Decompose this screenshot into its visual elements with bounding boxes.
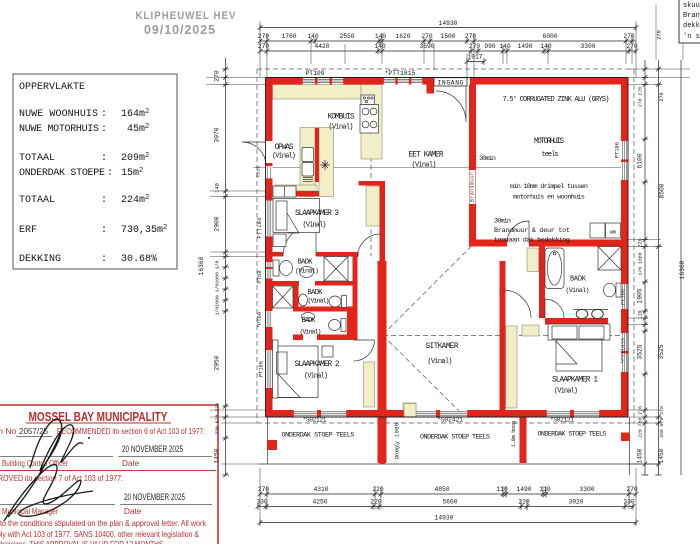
svg-text:2900: 2900 bbox=[214, 216, 221, 231]
svg-text:20 NOVEMBER 2025: 20 NOVEMBER 2025 bbox=[124, 492, 185, 502]
svg-text:(Vinal): (Vinal) bbox=[295, 268, 319, 275]
svg-text:PT186: PT186 bbox=[620, 289, 626, 305]
svg-text:wm: wm bbox=[610, 230, 616, 236]
svg-text::: : bbox=[101, 153, 107, 164]
svg-text:8500: 8500 bbox=[659, 183, 666, 198]
svg-text:*PT09: *PT09 bbox=[257, 312, 263, 328]
svg-text:6000: 6000 bbox=[542, 33, 557, 40]
svg-text:Bran: Bran bbox=[683, 12, 700, 20]
svg-text:3525: 3525 bbox=[637, 344, 644, 359]
svg-text:30.68%: 30.68% bbox=[121, 254, 157, 265]
svg-text:Subject to the conditions stip: Subject to the conditions stipulated on … bbox=[0, 519, 207, 528]
svg-text:14930: 14930 bbox=[439, 20, 458, 27]
svg-text::: : bbox=[101, 195, 107, 206]
svg-text:ERF: ERF bbox=[19, 225, 37, 236]
svg-text:*S02421: *S02421 bbox=[437, 417, 463, 424]
svg-text:1/01000 1/01000 1/0: 1/01000 1/01000 1/0 bbox=[215, 261, 221, 316]
svg-text:Brandmuur: Brandmuur bbox=[470, 172, 476, 202]
svg-text:Brandmuur & deur tot: Brandmuur & deur tot bbox=[494, 227, 570, 235]
svg-text:(Vinal): (Vinal) bbox=[308, 298, 330, 305]
svg-text:1.8m hoog: 1.8m hoog bbox=[511, 421, 517, 447]
svg-text::: : bbox=[101, 109, 107, 120]
svg-text:220: 220 bbox=[372, 486, 384, 493]
svg-text:KOMBUIS: KOMBUIS bbox=[328, 114, 355, 122]
svg-text::: : bbox=[107, 168, 113, 179]
svg-text:1490: 1490 bbox=[516, 486, 531, 493]
svg-text:330: 330 bbox=[256, 499, 268, 506]
svg-text:INGANG: INGANG bbox=[438, 79, 464, 86]
svg-text:1450: 1450 bbox=[658, 448, 665, 463]
svg-text:6100: 6100 bbox=[637, 153, 644, 168]
svg-text:3590: 3590 bbox=[419, 43, 434, 50]
svg-text:3920: 3920 bbox=[568, 499, 583, 506]
svg-text:Date: Date bbox=[124, 507, 142, 516]
svg-text:Droogly: Droogly bbox=[395, 440, 401, 459]
svg-text:APPROVED ito section 7 of Act: APPROVED ito section 7 of Act 103 of 197… bbox=[0, 474, 123, 483]
svg-text:OPWAS: OPWAS bbox=[275, 144, 294, 152]
svg-text:3970: 3970 bbox=[214, 127, 221, 142]
svg-text:1017: 1017 bbox=[467, 54, 482, 61]
svg-text:270: 270 bbox=[258, 43, 270, 50]
svg-text:140: 140 bbox=[215, 183, 221, 193]
svg-text:14930: 14930 bbox=[435, 515, 454, 522]
svg-text:20 NOVEMBER 2025: 20 NOVEMBER 2025 bbox=[122, 444, 183, 454]
svg-text:*PTT1815: *PTT1815 bbox=[621, 338, 627, 364]
svg-text:*S02121: *S02121 bbox=[550, 417, 574, 424]
svg-text:09/10/2025: 09/10/2025 bbox=[144, 22, 216, 37]
svg-text:PTT186: PTT186 bbox=[257, 218, 263, 239]
svg-text:1760: 1760 bbox=[281, 33, 296, 40]
svg-text:TOTAAL: TOTAAL bbox=[19, 153, 55, 164]
svg-text:1450: 1450 bbox=[214, 448, 221, 463]
svg-text:1905: 1905 bbox=[637, 288, 644, 303]
svg-text:min 10mm drimpel tussen: min 10mm drimpel tussen bbox=[510, 183, 588, 191]
svg-text:BADK: BADK bbox=[298, 259, 314, 267]
svg-text:NUWE MOTORHUIS: NUWE MOTORHUIS bbox=[19, 124, 99, 135]
svg-text:(Vinal): (Vinal) bbox=[412, 162, 437, 170]
svg-text::: : bbox=[101, 225, 107, 236]
svg-text:ONDERDAK STOEP TEELS: ONDERDAK STOEP TEELS bbox=[282, 432, 355, 440]
svg-text:140: 140 bbox=[540, 43, 552, 50]
svg-text:3300: 3300 bbox=[579, 486, 594, 493]
svg-text:(Vinal): (Vinal) bbox=[428, 358, 453, 366]
svg-text:270 270: 270 270 bbox=[638, 87, 644, 107]
svg-text:4420: 4420 bbox=[314, 43, 329, 50]
svg-text:dekk: dekk bbox=[683, 22, 700, 30]
svg-text:MOTORHUIS: MOTORHUIS bbox=[534, 138, 564, 146]
svg-text:*S02121: *S02121 bbox=[303, 417, 327, 424]
svg-text:224m2: 224m2 bbox=[121, 194, 149, 206]
svg-text:730,35m2: 730,35m2 bbox=[121, 224, 167, 236]
svg-text:(Vinal): (Vinal) bbox=[304, 373, 328, 381]
svg-text:209m2: 209m2 bbox=[121, 152, 149, 164]
svg-text:(Vinal): (Vinal) bbox=[300, 329, 322, 336]
svg-text:4310: 4310 bbox=[313, 486, 328, 493]
svg-text:1450: 1450 bbox=[637, 448, 644, 463]
svg-text:teenaan dak bedekking: teenaan dak bedekking bbox=[494, 237, 570, 245]
svg-text:SITKAMER: SITKAMER bbox=[426, 343, 459, 351]
svg-text:ONDERDAK STOEP TEELS: ONDERDAK STOEP TEELS bbox=[538, 431, 607, 439]
svg-text:motorhuis en woonhuis: motorhuis en woonhuis bbox=[513, 194, 585, 202]
svg-text:Council decisions. THIS APP: Council decisions. THIS APPROVAL IS VALI… bbox=[0, 540, 165, 544]
svg-text:140: 140 bbox=[375, 33, 387, 40]
svg-text:270: 270 bbox=[421, 33, 433, 40]
svg-text:220: 220 bbox=[370, 499, 382, 506]
svg-text:3300: 3300 bbox=[580, 43, 595, 50]
svg-text::: : bbox=[101, 124, 107, 135]
svg-text:skuu: skuu bbox=[683, 2, 700, 10]
svg-text:ONDERDAK STOEP TEELS: ONDERDAK STOEP TEELS bbox=[420, 434, 490, 442]
svg-text:Plan No: Plan No bbox=[0, 426, 17, 436]
svg-text:220 780 270: 220 780 270 bbox=[638, 406, 644, 438]
svg-text:PS16: PS16 bbox=[257, 166, 262, 177]
svg-text:2550: 2550 bbox=[339, 33, 354, 40]
svg-text:5660: 5660 bbox=[442, 499, 457, 506]
svg-text:'n s: 'n s bbox=[683, 33, 700, 41]
svg-text:1000: 1000 bbox=[395, 423, 401, 437]
svg-text:140: 140 bbox=[499, 43, 511, 50]
svg-text:KLIPHEUWEL HEV: KLIPHEUWEL HEV bbox=[136, 10, 237, 22]
svg-text:220: 220 bbox=[518, 499, 530, 506]
svg-text:330 670 270: 330 670 270 bbox=[215, 403, 221, 435]
svg-text:270: 270 bbox=[659, 92, 665, 101]
svg-text:DEKKING: DEKKING bbox=[19, 254, 61, 265]
svg-text:PT186: PT186 bbox=[259, 361, 265, 377]
svg-text:BADK: BADK bbox=[570, 276, 587, 284]
svg-text:BADK: BADK bbox=[308, 289, 324, 297]
svg-text:*PTT1815: *PTT1815 bbox=[385, 70, 416, 77]
svg-text:EET KAMER: EET KAMER bbox=[409, 152, 444, 160]
svg-text:140: 140 bbox=[307, 33, 319, 40]
svg-text:(Vinal): (Vinal) bbox=[566, 287, 590, 294]
svg-text:7.5° CORRUGATED ZINK ALU (GRYS: 7.5° CORRUGATED ZINK ALU (GRYS) bbox=[503, 95, 610, 104]
svg-text:SLAAPKAMER 2: SLAAPKAMER 2 bbox=[295, 361, 340, 369]
svg-text:270: 270 bbox=[258, 33, 270, 40]
svg-text:Building Control Officer: Building Control Officer bbox=[2, 459, 68, 468]
svg-text:PT109: PT109 bbox=[306, 70, 325, 77]
svg-text:270: 270 bbox=[623, 33, 635, 40]
svg-text:3525: 3525 bbox=[658, 344, 665, 359]
svg-text:110: 110 bbox=[539, 486, 551, 493]
svg-text:(Vinal): (Vinal) bbox=[272, 153, 296, 161]
svg-text:4250: 4250 bbox=[312, 499, 327, 506]
svg-text:(Vinal): (Vinal) bbox=[303, 222, 327, 230]
svg-text:1/0 1000: 1/0 1000 bbox=[638, 252, 644, 275]
svg-text:4850: 4850 bbox=[434, 486, 449, 493]
svg-text:16360: 16360 bbox=[679, 260, 686, 279]
svg-text:270: 270 bbox=[465, 33, 477, 40]
svg-text:270: 270 bbox=[657, 30, 663, 40]
svg-text:(Vinal): (Vinal) bbox=[554, 388, 578, 396]
svg-text:OPPERVLAKTE: OPPERVLAKTE bbox=[19, 82, 85, 93]
svg-text:must comply with Act 103 of 19: must comply with Act 103 of 1977, SANS 1… bbox=[0, 530, 199, 539]
svg-text:ONDERDAK STOEPE: ONDERDAK STOEPE bbox=[19, 168, 105, 179]
svg-text:270: 270 bbox=[258, 486, 270, 493]
svg-text:2950: 2950 bbox=[214, 355, 221, 370]
svg-text:MOSSEL BAY MUNICIPALITY: MOSSEL BAY MUNICIPALITY bbox=[29, 410, 169, 424]
svg-text:16360: 16360 bbox=[198, 256, 205, 275]
svg-text:270: 270 bbox=[214, 70, 221, 82]
svg-text:TOTAAL: TOTAAL bbox=[19, 195, 55, 206]
svg-text:164m2: 164m2 bbox=[121, 108, 149, 120]
svg-text:1500: 1500 bbox=[440, 33, 455, 40]
svg-text:1620: 1620 bbox=[395, 33, 410, 40]
svg-text:1490: 1490 bbox=[517, 43, 532, 50]
svg-text:45m2: 45m2 bbox=[127, 123, 149, 135]
svg-text:Date: Date bbox=[122, 459, 140, 468]
svg-text:RECOMMENDED ito section 6 of A: RECOMMENDED ito section 6 of Act 103 of … bbox=[57, 427, 205, 436]
svg-text::: : bbox=[101, 254, 107, 265]
svg-text:SLAAPKAMER 3: SLAAPKAMER 3 bbox=[295, 210, 339, 218]
svg-text:(Vinal): (Vinal) bbox=[329, 124, 354, 132]
svg-text:140: 140 bbox=[374, 43, 386, 50]
svg-text:220: 220 bbox=[638, 238, 644, 247]
svg-text:teels: teels bbox=[542, 151, 559, 159]
svg-text:990: 990 bbox=[484, 43, 496, 50]
svg-text:NUWE WOONHUIS: NUWE WOONHUIS bbox=[19, 109, 98, 120]
svg-text:30min: 30min bbox=[479, 155, 496, 163]
svg-text:PT186: PT186 bbox=[615, 142, 621, 158]
svg-text:15m2: 15m2 bbox=[121, 167, 143, 179]
svg-text:270: 270 bbox=[469, 43, 481, 50]
svg-text:BADK: BADK bbox=[302, 317, 317, 325]
svg-text:PT68: PT68 bbox=[257, 271, 263, 284]
svg-text:30min: 30min bbox=[494, 218, 511, 226]
svg-text:330 670 270: 330 670 270 bbox=[659, 406, 665, 438]
svg-text:SLAAPKAMER 1: SLAAPKAMER 1 bbox=[552, 377, 598, 385]
